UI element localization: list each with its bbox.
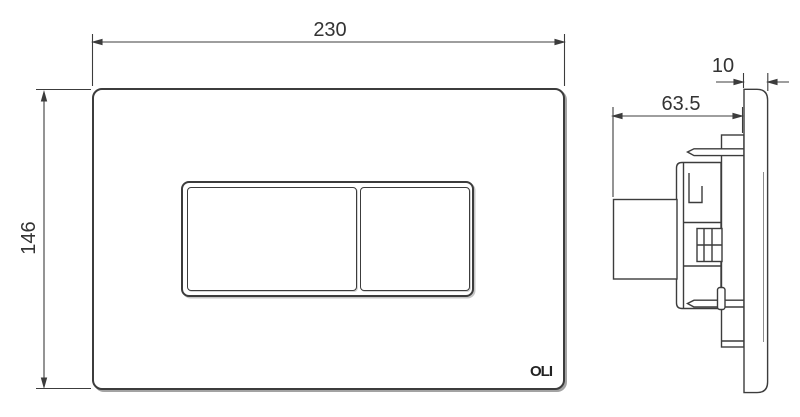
arrowhead-up <box>42 92 47 101</box>
flush-plate-side-view <box>614 89 768 392</box>
dim-10-lines <box>716 73 789 91</box>
arrowhead-inward-right <box>734 80 743 85</box>
arrowhead-down <box>42 378 47 387</box>
dim-230-lines <box>93 34 565 86</box>
arrowhead-inward-left <box>768 80 777 85</box>
side-bottom-clip <box>688 300 745 307</box>
drawing-lines-svg <box>0 0 800 417</box>
side-pushrod-box <box>614 200 678 280</box>
side-mounting-frame <box>722 135 745 347</box>
arrowhead-left <box>93 40 102 45</box>
side-plate-profile <box>744 89 768 392</box>
arrowhead-right <box>555 40 564 45</box>
dim-146-lines <box>36 90 91 389</box>
side-clip-pin <box>718 288 726 310</box>
technical-drawing-canvas: OLI 230 146 63.5 10 <box>0 0 800 417</box>
arrowhead-left <box>613 114 622 119</box>
arrowhead-right <box>733 114 742 119</box>
side-top-clip <box>688 149 745 156</box>
